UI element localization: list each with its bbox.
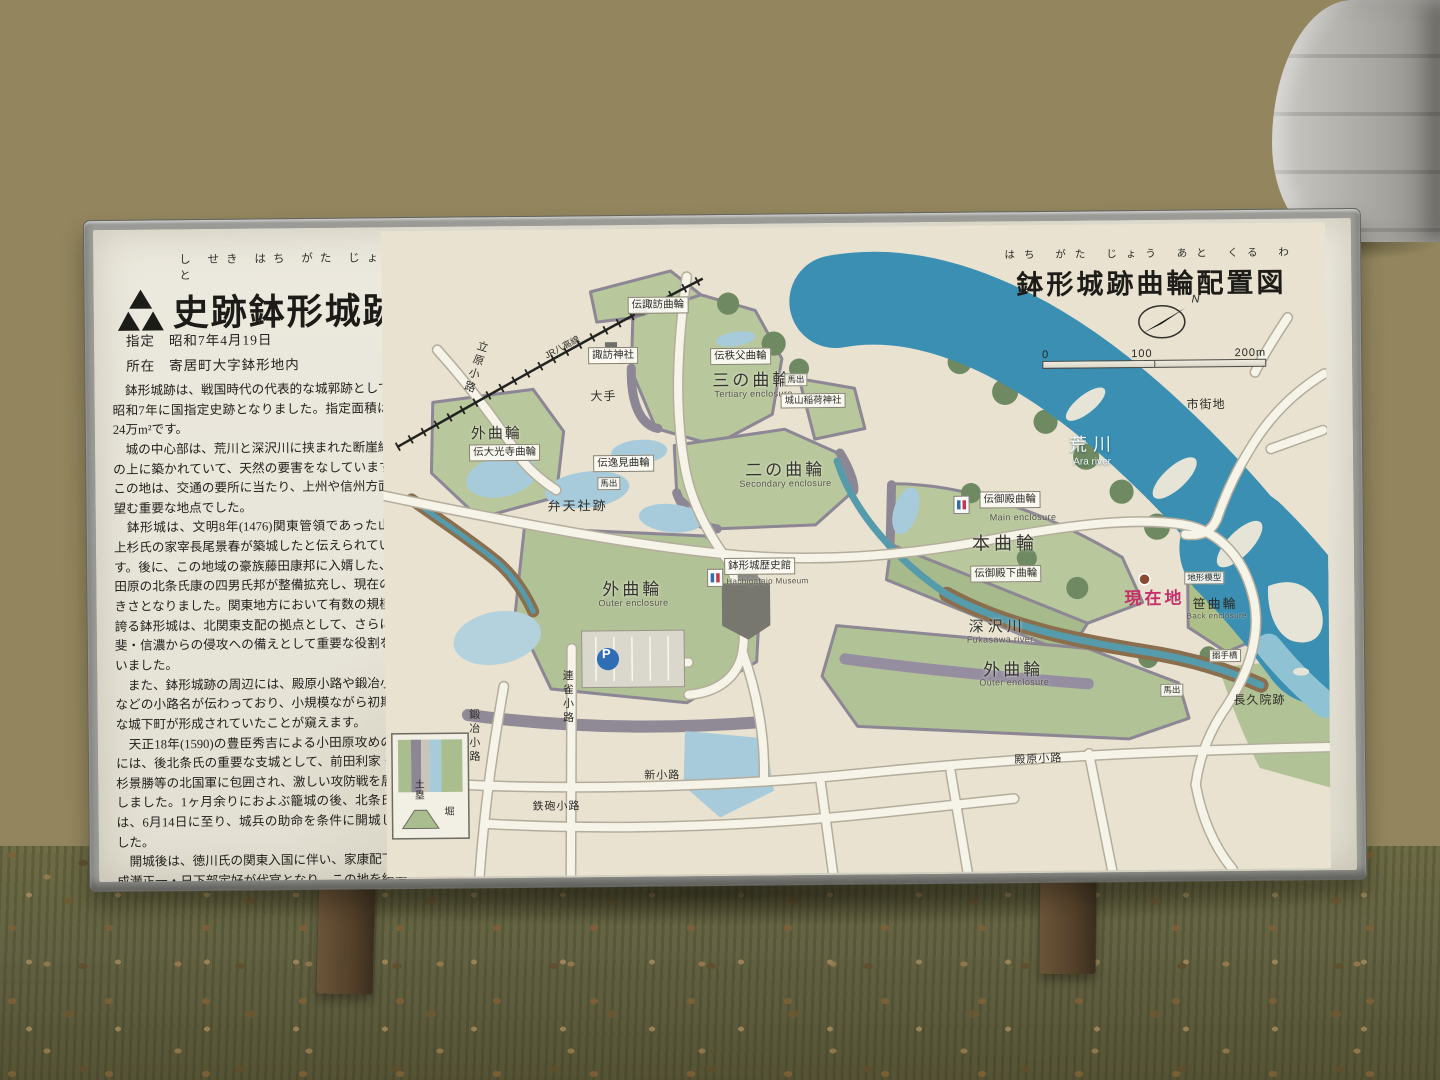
- map-label-shin-lane: 新小路: [644, 766, 680, 782]
- map-label-den-itsumi-kuruwa: 伝逸見曲輪: [593, 455, 654, 472]
- map-label-history-museum-en: Hachigatajo Museum: [726, 576, 808, 586]
- map-label-ote-gate: 大手: [590, 387, 616, 404]
- map-label-terrain-model: 地形模型: [1184, 571, 1224, 585]
- map-label-second-enclosure: 二の曲輪: [745, 455, 825, 481]
- legend-earthwork-label: 土塁: [410, 779, 425, 801]
- scale-hundred: 100: [1131, 348, 1152, 360]
- map-label-kaji-lane: 鍛冶小路: [466, 708, 483, 764]
- north-arrow-icon: N: [1134, 295, 1204, 344]
- map-label-sasa-enclosure: 笹曲輪: [1192, 593, 1237, 612]
- map-label-den-gotenshita-kuruwa: 伝御殿下曲輪: [970, 565, 1041, 582]
- map-label-main-enclosure-en: Main enclosure: [990, 512, 1057, 523]
- map-label-suwa-shrine: 諏訪神社: [588, 347, 638, 364]
- designation-label: 指定: [126, 329, 155, 354]
- map-label-outer-enclosure-se-en: Outer enclosure: [979, 677, 1049, 688]
- mitsuuroko-crest-icon: [117, 289, 163, 331]
- map-label-shiroyama-inari-shrine: 城山稲荷神社: [780, 393, 845, 409]
- paragraph-3: 鉢形城は、文明8年(1476)関東管領であった山内上杉氏の家宰長尾景春が築城した…: [114, 517, 405, 677]
- map-label-back-enclosure-en: Back enclosure: [1187, 611, 1247, 621]
- designation-info: 指定 昭和7年4月19日 所在 寄居町大字鉢形地内: [126, 328, 300, 380]
- paragraph-5: 天正18年(1590)の豊臣秀吉による小田原攻めの際には、後北条氏の重要な支城と…: [116, 733, 407, 854]
- sign-panel: し せき はち がた じょう あと 史跡鉢形城跡 指定 昭和7年4月19日: [93, 218, 1357, 882]
- legend-moat-label: 堀: [444, 803, 454, 818]
- map-label-den-chichibu-kuruwa: 伝秩父曲輪: [710, 348, 771, 365]
- map-title-furigana: はち がた じょう あと くる わ: [993, 244, 1309, 262]
- map-label-outer-enclosure-center: 外曲輪: [602, 575, 662, 601]
- sign-leg-left: [316, 875, 375, 994]
- paragraph-6: 開城後は、徳川氏の関東入国に伴い、家康配下の成瀬正一・日下部定好が代官となり、こ…: [117, 850, 408, 882]
- map-label-renjaku-lane: 連雀小路: [559, 669, 576, 725]
- map-title-block: はち がた じょう あと くる わ 鉢形城跡曲輪配置図: [993, 244, 1310, 302]
- scale-twohundred: 200m: [1235, 347, 1267, 359]
- scale-zero: 0: [1042, 349, 1049, 361]
- history-description: 鉢形城跡は、戦国時代の代表的な城郭跡として、昭和7年に国指定史跡となりました。指…: [112, 379, 407, 882]
- legend-box: [392, 733, 469, 839]
- designation-value: 昭和7年4月19日: [169, 328, 273, 354]
- map-label-third-enclosure: 三の曲輪: [712, 365, 792, 391]
- map-label-den-daikoji-kuruwa: 伝大光寺曲輪: [469, 444, 540, 461]
- map-label-umadashi: 馬出: [784, 373, 807, 387]
- map-label-tonohara-lane: 殿原小路: [1014, 749, 1063, 767]
- map-label-city-area: 市街地: [1187, 395, 1226, 412]
- map-label-den-goten-kuruwa: 伝御殿曲輪: [979, 491, 1040, 508]
- map-label-umadashi: 馬出: [1160, 684, 1183, 698]
- restroom-icon: [708, 569, 723, 586]
- map-label-fukasawa-river-en: Fukasawa river: [967, 634, 1034, 645]
- paragraph-2: 城の中心部は、荒川と深沢川に挟まれた断崖絶壁の上に築かれていて、天然の要害をなし…: [113, 438, 404, 519]
- map-label-umadashi: 馬出: [597, 477, 620, 491]
- castle-layout-map: はち がた じょう あと くる わ 鉢形城跡曲輪配置図 N 0 100 200m: [381, 222, 1331, 877]
- map-label-chokyuin-site: 長久院跡: [1233, 691, 1285, 708]
- map-label-outer-enclosure-west: 外曲輪: [471, 422, 522, 443]
- map-label-bentensha-site: 弁天社跡: [547, 495, 607, 515]
- parking-letter: P: [602, 646, 611, 661]
- map-label-karamete-bridge: 搦手橋: [1209, 649, 1241, 663]
- paragraph-1: 鉢形城跡は、戦国時代の代表的な城郭跡として、昭和7年に国指定史跡となりました。指…: [112, 379, 403, 441]
- map-label-ara-river: 荒川: [1069, 430, 1117, 456]
- map-label-teppo-lane: 鉄砲小路: [532, 797, 580, 813]
- map-label-main-enclosure: 本曲輪: [972, 529, 1038, 556]
- map-label-den-suwa-kuruwa: 伝諏訪曲輪: [628, 296, 689, 313]
- map-label-outer-enclosure-center-en: Outer enclosure: [598, 598, 668, 609]
- paragraph-4: また、鉢形城跡の周辺には、殿原小路や鍛冶小路などの小路名が伝わっており、小規模な…: [115, 674, 406, 736]
- outdoor-photo-scene: し せき はち がた じょう あと 史跡鉢形城跡 指定 昭和7年4月19日: [0, 0, 1440, 1080]
- north-label: N: [1192, 293, 1200, 305]
- restroom-icon: [954, 496, 969, 513]
- map-label-ara-river-en: Ara river: [1073, 456, 1111, 467]
- map-label-history-museum: 鉢形城歴史館: [724, 557, 795, 574]
- scale-bar: 0 100 200m: [1042, 347, 1266, 369]
- sign-leg-right: [1040, 870, 1097, 974]
- information-signboard: し せき はち がた じょう あと 史跡鉢形城跡 指定 昭和7年4月19日: [83, 208, 1367, 892]
- map-label-current-location: 現在地: [1124, 584, 1184, 610]
- location-value: 寄居町大字鉢形地内: [169, 353, 300, 379]
- location-label: 所在: [126, 354, 155, 379]
- map-label-secondary-enclosure-en: Secondary enclosure: [739, 478, 831, 489]
